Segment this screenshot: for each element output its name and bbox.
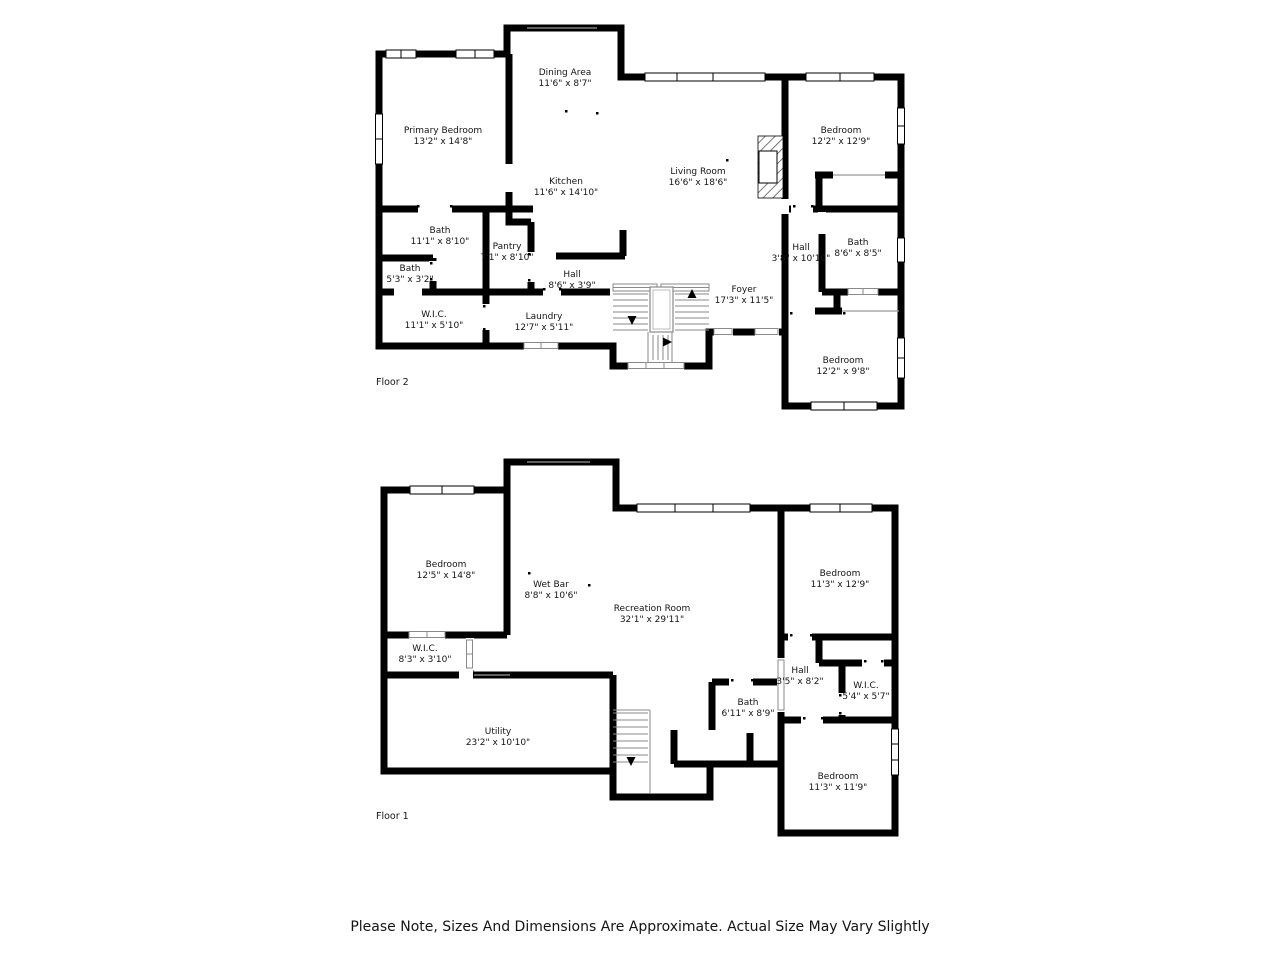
room-dims: 13'2" x 14'8" xyxy=(404,137,482,148)
room-label-bath-f1: Bath6'11" x 8'9" xyxy=(722,698,775,720)
room-label-hall-f2-center: Hall8'6" x 3'9" xyxy=(548,270,595,292)
room-dims: 23'2" x 10'10" xyxy=(466,738,530,749)
room-name: Bedroom xyxy=(812,126,871,137)
room-name: W.I.C. xyxy=(405,310,464,321)
room-label-primary-bedroom: Primary Bedroom13'2" x 14'8" xyxy=(404,126,482,148)
floor1-label: Floor 1 xyxy=(376,811,409,822)
room-dims: 12'7" x 5'11" xyxy=(515,323,574,334)
room-name: Bath xyxy=(386,264,433,275)
room-dims: 8'6" x 3'9" xyxy=(548,281,595,292)
room-dims: 11'3" x 12'9" xyxy=(811,580,870,591)
floor-plan-page: Dining Area11'6" x 8'7" Primary Bedroom1… xyxy=(0,0,1280,960)
room-name: Foyer xyxy=(715,285,774,296)
room-name: Utility xyxy=(466,727,530,738)
room-label-foyer: Foyer17'3" x 11'5" xyxy=(715,285,774,307)
room-dims: 7'1" x 8'10" xyxy=(481,253,534,264)
room-name: Bedroom xyxy=(417,560,476,571)
room-dims: 16'6" x 18'6" xyxy=(669,178,728,189)
room-label-living-room: Living Room16'6" x 18'6" xyxy=(669,167,728,189)
room-label-wic-f1-left: W.I.C.8'3" x 3'10" xyxy=(399,644,452,666)
room-name: Wet Bar xyxy=(525,580,578,591)
room-label-bedroom-f1-left: Bedroom12'5" x 14'8" xyxy=(417,560,476,582)
floor-plan-canvas xyxy=(0,0,1280,960)
room-dims: 8'8" x 10'6" xyxy=(525,591,578,602)
room-name: W.I.C. xyxy=(399,644,452,655)
floor2-label: Floor 2 xyxy=(376,377,409,388)
room-dims: 5'4" x 5'7" xyxy=(842,692,889,703)
room-name: Bath xyxy=(411,226,470,237)
room-name: Hall xyxy=(548,270,595,281)
room-name: W.I.C. xyxy=(842,681,889,692)
room-name: Hall xyxy=(772,243,831,254)
room-dims: 6'11" x 8'9" xyxy=(722,709,775,720)
room-dims: 11'1" x 5'10" xyxy=(405,321,464,332)
room-name: Bedroom xyxy=(811,569,870,580)
room-dims: 17'3" x 11'5" xyxy=(715,296,774,307)
room-label-dining-area: Dining Area11'6" x 8'7" xyxy=(539,68,592,90)
room-name: Recreation Room xyxy=(614,604,691,615)
room-label-bedroom-f2-right-bottom: Bedroom12'2" x 9'8" xyxy=(817,356,870,378)
floor2-plan xyxy=(376,28,905,410)
room-label-wet-bar: Wet Bar8'8" x 10'6" xyxy=(525,580,578,602)
floor2-walls xyxy=(379,28,901,406)
room-label-wic-f2: W.I.C.11'1" x 5'10" xyxy=(405,310,464,332)
room-dims: 3'5" x 8'2" xyxy=(776,677,823,688)
room-name: Pantry xyxy=(481,242,534,253)
room-label-wic-f1-right: W.I.C.5'4" x 5'7" xyxy=(842,681,889,703)
room-label-bath-f2-right: Bath8'6" x 8'5" xyxy=(834,238,881,260)
room-name: Bath xyxy=(722,698,775,709)
room-label-pantry: Pantry7'1" x 8'10" xyxy=(481,242,534,264)
floor2-stairs xyxy=(613,287,709,363)
room-label-laundry: Laundry12'7" x 5'11" xyxy=(515,312,574,334)
room-label-bath-f2-small: Bath5'3" x 3'2" xyxy=(386,264,433,286)
room-label-kitchen: Kitchen11'6" x 14'10" xyxy=(534,177,598,199)
room-label-bedroom-f1-right-bottom: Bedroom11'3" x 11'9" xyxy=(809,772,868,794)
floor1-thin-lines xyxy=(474,462,590,675)
room-name: Bedroom xyxy=(817,356,870,367)
room-dims: 8'3" x 3'10" xyxy=(399,655,452,666)
fireplace xyxy=(758,136,783,198)
room-name: Bath xyxy=(834,238,881,249)
floor1-stairs xyxy=(613,710,650,793)
room-dims: 5'3" x 3'2" xyxy=(386,275,433,286)
room-name: Kitchen xyxy=(534,177,598,188)
room-dims: 12'5" x 14'8" xyxy=(417,571,476,582)
room-label-hall-f2-right: Hall3'8" x 10'10" xyxy=(772,243,831,265)
room-label-utility: Utility23'2" x 10'10" xyxy=(466,727,530,749)
room-dims: 11'6" x 14'10" xyxy=(534,188,598,199)
room-label-hall-f1: Hall3'5" x 8'2" xyxy=(776,666,823,688)
room-name: Dining Area xyxy=(539,68,592,79)
room-label-bedroom-f1-right-top: Bedroom11'3" x 12'9" xyxy=(811,569,870,591)
room-dims: 8'6" x 8'5" xyxy=(834,249,881,260)
room-label-bedroom-f2-right-top: Bedroom12'2" x 12'9" xyxy=(812,126,871,148)
room-name: Primary Bedroom xyxy=(404,126,482,137)
room-name: Hall xyxy=(776,666,823,677)
room-dims: 11'6" x 8'7" xyxy=(539,79,592,90)
room-dims: 12'2" x 9'8" xyxy=(817,367,870,378)
room-dims: 11'3" x 11'9" xyxy=(809,783,868,794)
disclaimer-note: Please Note, Sizes And Dimensions Are Ap… xyxy=(350,919,929,935)
room-dims: 32'1" x 29'11" xyxy=(614,615,691,626)
room-name: Laundry xyxy=(515,312,574,323)
room-dims: 3'8" x 10'10" xyxy=(772,254,831,265)
room-dims: 11'1" x 8'10" xyxy=(411,237,470,248)
room-name: Bedroom xyxy=(809,772,868,783)
room-label-bath-f2-large: Bath11'1" x 8'10" xyxy=(411,226,470,248)
room-dims: 12'2" x 12'9" xyxy=(812,137,871,148)
room-name: Living Room xyxy=(669,167,728,178)
room-label-recreation-room: Recreation Room32'1" x 29'11" xyxy=(614,604,691,626)
floor2-door-openings xyxy=(394,164,878,371)
